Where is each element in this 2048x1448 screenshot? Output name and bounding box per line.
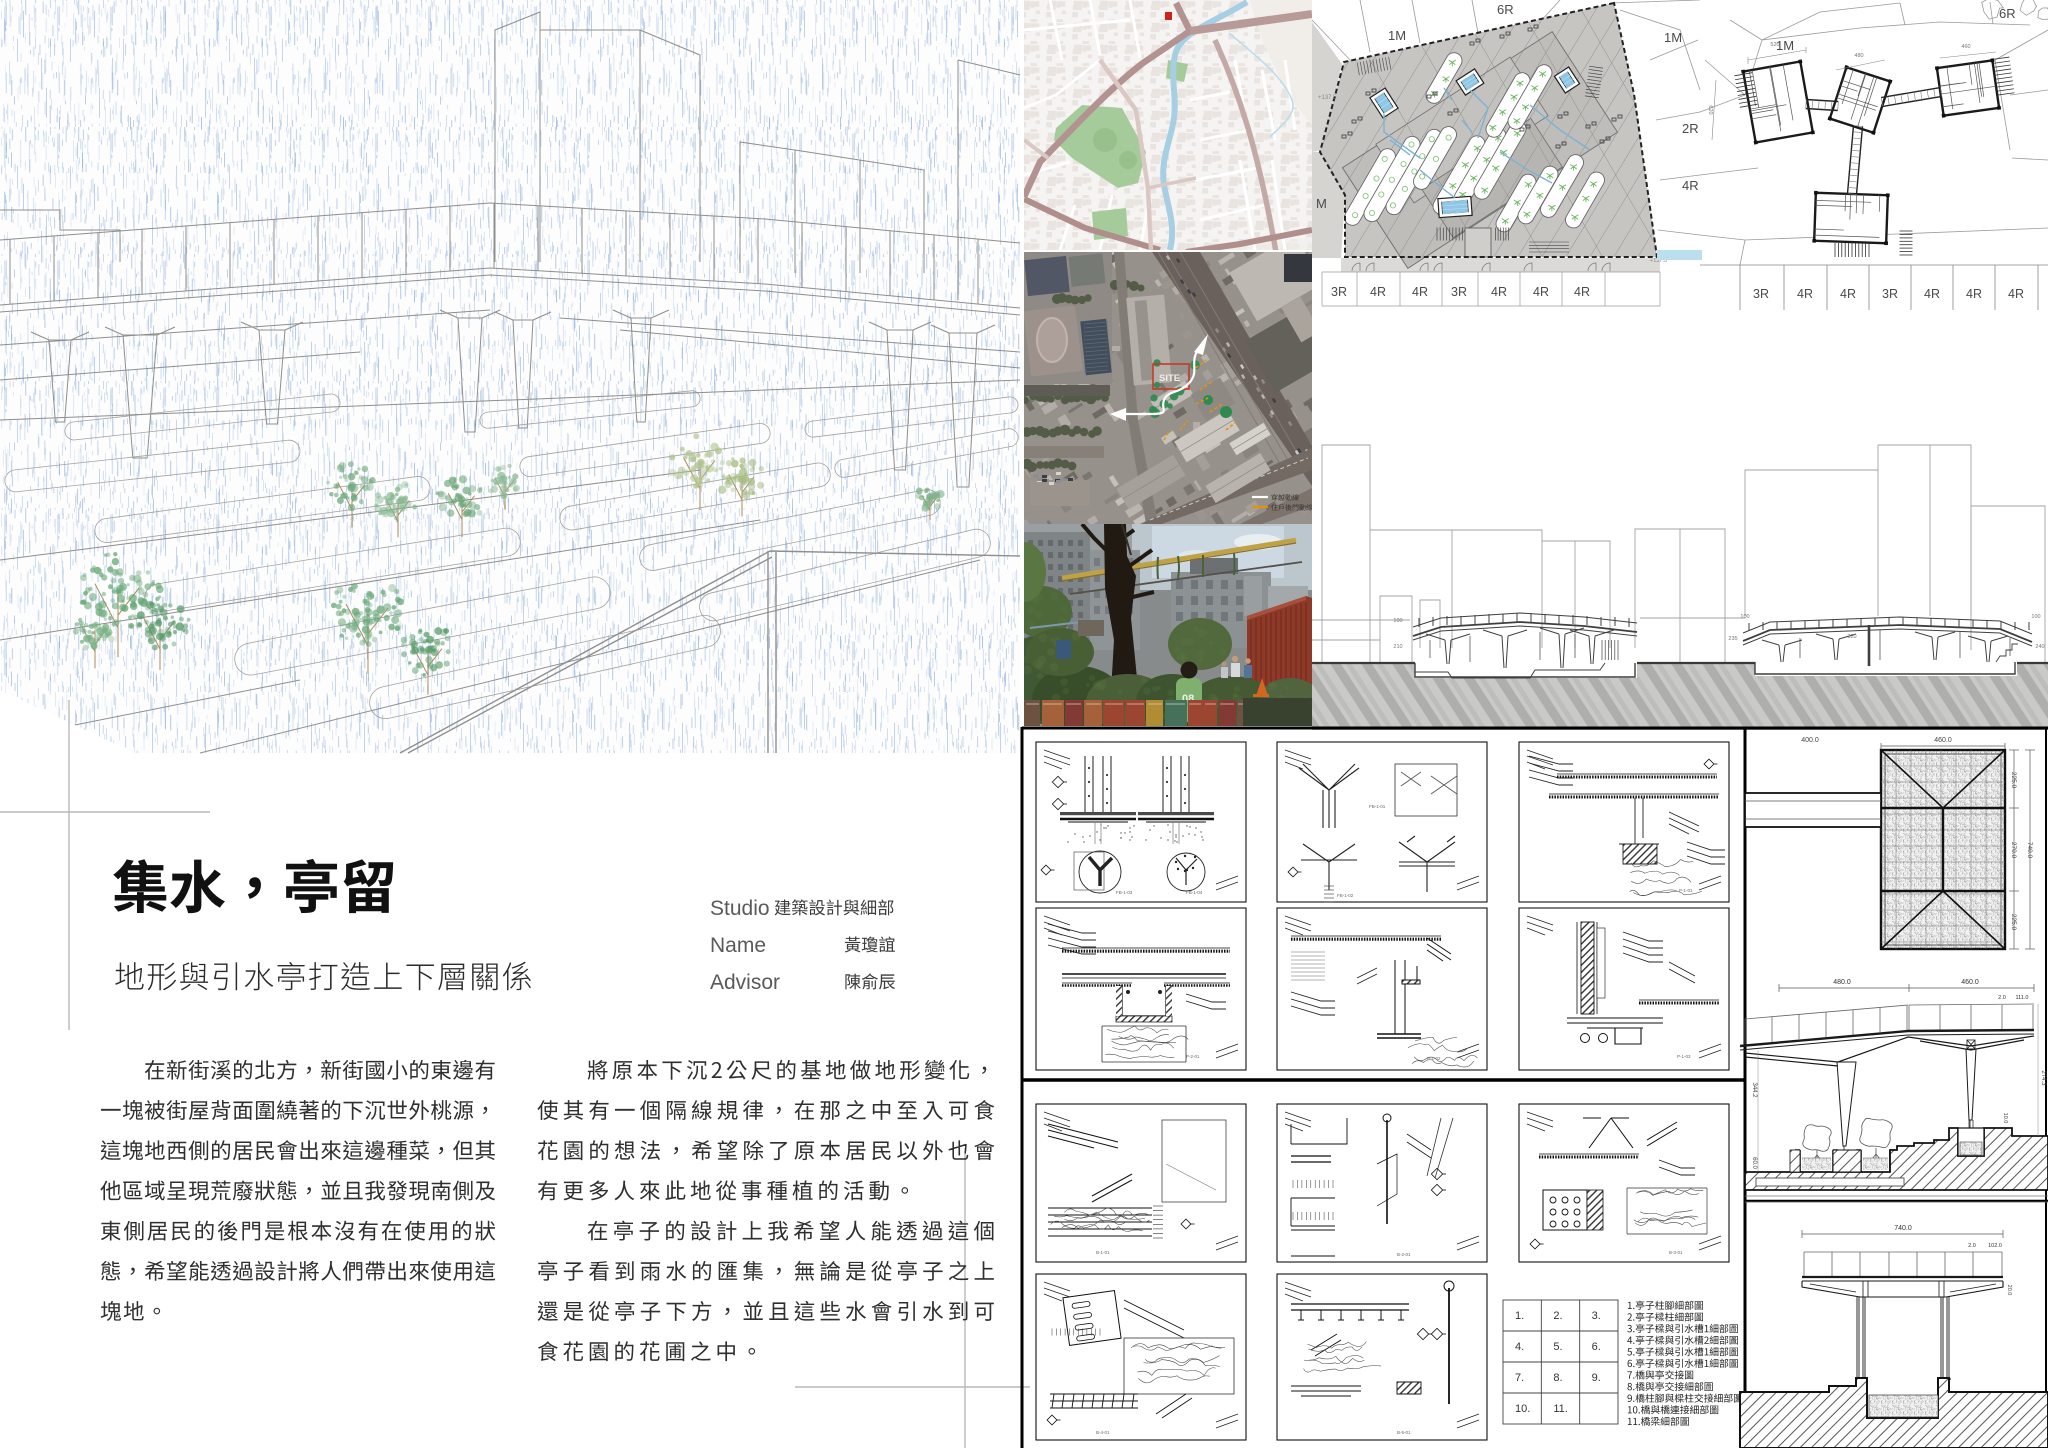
svg-text:520: 520 xyxy=(1770,42,1779,48)
svg-text:400.0: 400.0 xyxy=(1801,737,1819,744)
svg-text:3R: 3R xyxy=(1451,285,1467,299)
svg-text:3R: 3R xyxy=(1753,287,1769,301)
svg-text:460.0: 460.0 xyxy=(1934,737,1952,744)
svg-text:320: 320 xyxy=(1847,634,1856,640)
svg-text:4R: 4R xyxy=(1412,285,1428,299)
svg-text:1.: 1. xyxy=(1515,1310,1524,1322)
svg-text:2R: 2R xyxy=(1682,121,1699,136)
svg-text:8.: 8. xyxy=(1553,1372,1562,1384)
svg-text:100: 100 xyxy=(1393,618,1402,624)
svg-text:2.0: 2.0 xyxy=(1998,995,2006,1001)
svg-text:B-1-01: B-1-01 xyxy=(1096,1250,1110,1255)
svg-text:4.: 4. xyxy=(1515,1341,1524,1353)
svg-text:FB-1-04: FB-1-04 xyxy=(1186,890,1203,895)
svg-text:10.: 10. xyxy=(1515,1403,1530,1415)
svg-text:2.0: 2.0 xyxy=(1968,1243,1976,1249)
svg-text:4R: 4R xyxy=(1966,287,1982,301)
svg-text:344.2: 344.2 xyxy=(1751,1082,1757,1098)
svg-text:B-4-01: B-4-01 xyxy=(1096,1430,1110,1435)
svg-text:3R: 3R xyxy=(1882,287,1898,301)
svg-text:SITE: SITE xyxy=(1159,373,1180,384)
svg-text:6.: 6. xyxy=(1592,1341,1601,1353)
svg-text:480.0: 480.0 xyxy=(1833,979,1851,986)
svg-text:P-1-02: P-1-02 xyxy=(1427,1056,1441,1061)
svg-text:225.0: 225.0 xyxy=(2010,914,2017,931)
svg-text:9.: 9. xyxy=(1592,1372,1601,1384)
svg-text:M: M xyxy=(1316,196,1327,211)
svg-text:7.: 7. xyxy=(1515,1372,1524,1384)
svg-text:P-1-01: P-1-01 xyxy=(1679,888,1693,893)
svg-text:10.0: 10.0 xyxy=(2002,1113,2008,1124)
svg-text:100: 100 xyxy=(1740,614,1749,620)
svg-text:Studio: Studio xyxy=(710,897,770,920)
svg-text:B-5-01: B-5-01 xyxy=(1397,1430,1411,1435)
svg-text:100: 100 xyxy=(2031,614,2040,620)
svg-text:6R: 6R xyxy=(1497,2,1514,17)
svg-text:274.3: 274.3 xyxy=(2040,1070,2046,1086)
svg-text:4R: 4R xyxy=(2008,287,2024,301)
svg-text:Advisor: Advisor xyxy=(710,971,780,994)
svg-text:60.0: 60.0 xyxy=(1751,1157,1757,1169)
svg-text:620: 620 xyxy=(1707,105,1713,114)
svg-text:20.0: 20.0 xyxy=(2006,1285,2012,1296)
svg-text:FB-1-01: FB-1-01 xyxy=(1369,804,1386,809)
svg-text:P-1-03: P-1-03 xyxy=(1677,1054,1691,1059)
svg-text:1M: 1M xyxy=(1664,30,1682,45)
svg-text:3.: 3. xyxy=(1592,1310,1601,1322)
svg-text:4R: 4R xyxy=(1840,287,1856,301)
svg-text:4R: 4R xyxy=(1924,287,1940,301)
svg-text:4R: 4R xyxy=(1574,285,1590,299)
svg-text:+137.5: +137.5 xyxy=(1318,95,1337,101)
svg-text:4R: 4R xyxy=(1797,287,1813,301)
svg-text:460: 460 xyxy=(1961,44,1970,50)
svg-text:111.0: 111.0 xyxy=(2016,995,2029,1001)
svg-text:235: 235 xyxy=(1728,636,1737,642)
svg-text:1M: 1M xyxy=(1388,28,1406,43)
svg-text:Name: Name xyxy=(710,934,766,957)
svg-text:210: 210 xyxy=(1393,644,1402,650)
svg-text:240: 240 xyxy=(2035,644,2044,650)
svg-text:460.0: 460.0 xyxy=(1961,979,1979,986)
svg-text:2.: 2. xyxy=(1553,1310,1562,1322)
svg-text:270.0: 270.0 xyxy=(2010,842,2017,859)
svg-text:102.0: 102.0 xyxy=(1988,1243,2002,1249)
svg-text:740.0: 740.0 xyxy=(1894,1225,1912,1232)
svg-text:FB-1-03: FB-1-03 xyxy=(1116,890,1133,895)
svg-text:4R: 4R xyxy=(1370,285,1386,299)
svg-text:B-2-01: B-2-01 xyxy=(1397,1252,1411,1257)
svg-text:225.0: 225.0 xyxy=(2010,772,2017,789)
svg-text:4R: 4R xyxy=(1533,285,1549,299)
svg-text:4R: 4R xyxy=(1682,178,1699,193)
svg-text:5.: 5. xyxy=(1553,1341,1562,1353)
svg-text:480: 480 xyxy=(1854,53,1863,59)
svg-text:740.0: 740.0 xyxy=(2026,842,2033,859)
svg-text:11.: 11. xyxy=(1553,1403,1567,1415)
svg-text:B-3-01: B-3-01 xyxy=(1669,1250,1683,1255)
svg-text:P-2-01: P-2-01 xyxy=(1186,1054,1200,1059)
svg-text:FB-1-02: FB-1-02 xyxy=(1337,893,1354,898)
svg-text:4R: 4R xyxy=(1491,285,1507,299)
svg-text:3R: 3R xyxy=(1331,285,1347,299)
